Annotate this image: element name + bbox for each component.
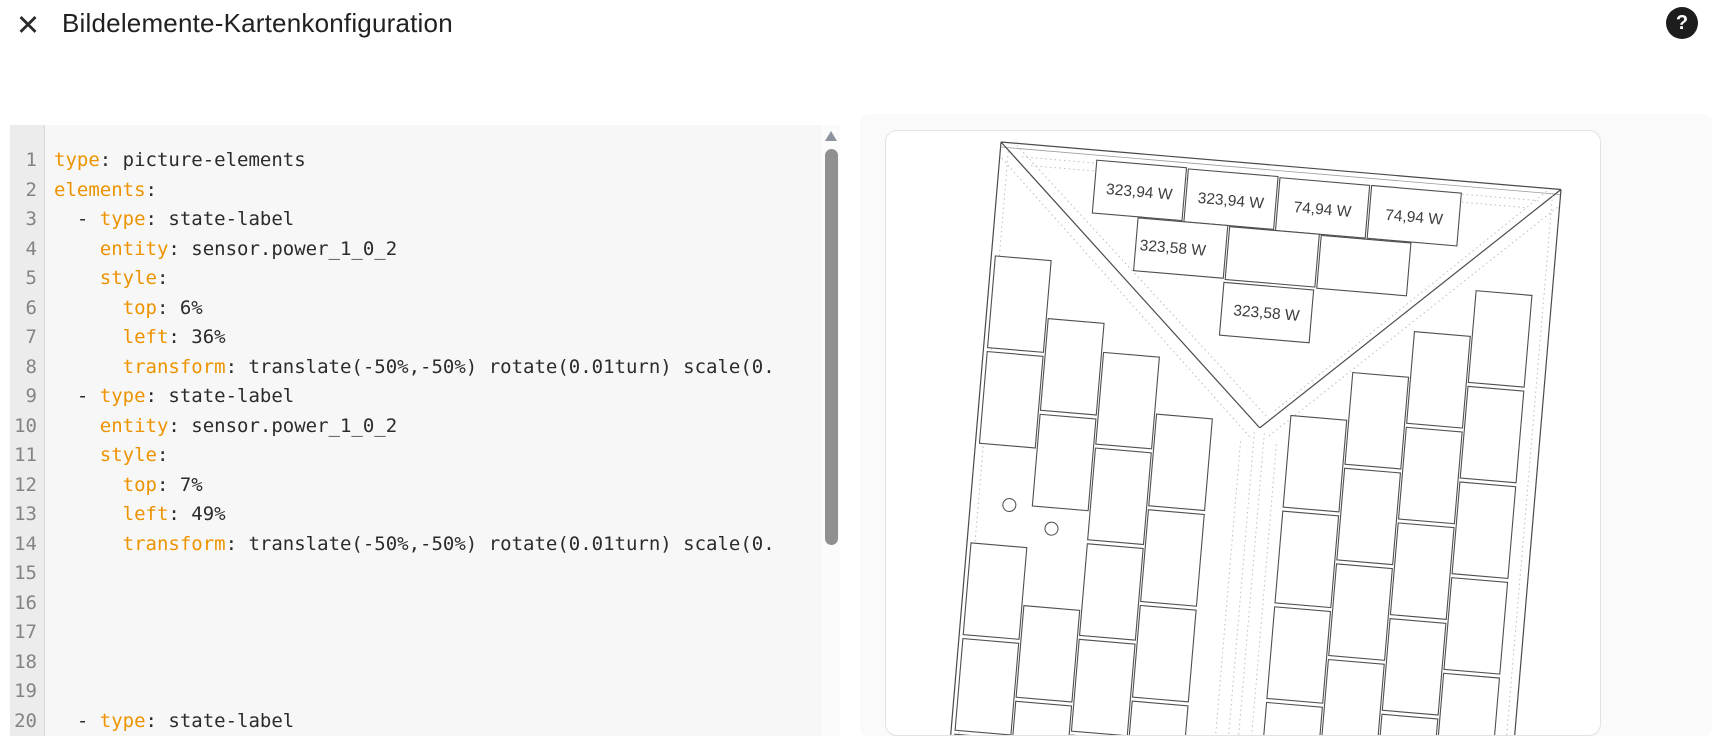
roof-vent <box>1002 498 1016 512</box>
editor-line <box>54 589 822 619</box>
yaml-editor[interactable]: 1234567891011121314151617181920 type: pi… <box>10 125 822 736</box>
line-number: 5 <box>10 264 37 294</box>
editor-code[interactable]: type: picture-elementselements: - type: … <box>45 125 822 736</box>
editor-line <box>54 559 822 589</box>
line-number: 9 <box>10 382 37 412</box>
solar-panel <box>1317 235 1411 295</box>
line-number: 7 <box>10 323 37 353</box>
editor-line: transform: translate(-50%,-50%) rotate(0… <box>54 530 822 560</box>
line-number: 2 <box>10 176 37 206</box>
line-number: 3 <box>10 205 37 235</box>
help-button[interactable]: ? <box>1666 7 1698 39</box>
line-number: 19 <box>10 677 37 707</box>
line-number: 10 <box>10 412 37 442</box>
help-icon: ? <box>1676 12 1688 34</box>
editor-line: left: 36% <box>54 323 822 353</box>
editor-line: style: <box>54 441 822 471</box>
line-number: 16 <box>10 589 37 619</box>
left-roof-panels <box>947 256 1225 736</box>
card-preview-panel: 323,94 W 323,94 W 74,94 W 74,94 W 323,58… <box>860 114 1712 736</box>
picture-elements-card-preview: 323,94 W 323,94 W 74,94 W 74,94 W 323,58… <box>885 130 1601 736</box>
line-number: 8 <box>10 353 37 383</box>
labeled-solar-panels: 323,94 W 323,94 W 74,94 W 74,94 W 323,58… <box>1083 160 1462 354</box>
line-number: 17 <box>10 618 37 648</box>
line-number: 14 <box>10 530 37 560</box>
dialog-header: ✕ Bildelemente-Kartenkonfiguration ? <box>0 0 1726 64</box>
line-number: 1 <box>10 146 37 176</box>
scrollbar-thumb[interactable] <box>825 149 838 545</box>
close-button[interactable]: ✕ <box>8 6 48 46</box>
line-number: 15 <box>10 559 37 589</box>
editor-line: - type: state-label <box>54 382 822 412</box>
editor-line: - type: state-label <box>54 707 822 736</box>
editor-line: style: <box>54 264 822 294</box>
line-number: 18 <box>10 648 37 678</box>
line-number: 11 <box>10 441 37 471</box>
line-number: 12 <box>10 471 37 501</box>
editor-line: top: 6% <box>54 294 822 324</box>
editor-line: transform: translate(-50%,-50%) rotate(0… <box>54 353 822 383</box>
dialog-title: Bildelemente-Kartenkonfiguration <box>62 4 453 42</box>
editor-line: type: picture-elements <box>54 146 822 176</box>
right-roof-panels <box>1254 276 1532 736</box>
editor-line <box>54 648 822 678</box>
solar-panel <box>1225 227 1319 287</box>
editor-line: - type: state-label <box>54 205 822 235</box>
line-number: 4 <box>10 235 37 265</box>
roof-plan-image: 323,94 W 323,94 W 74,94 W 74,94 W 323,58… <box>886 131 1601 736</box>
editor-line: top: 7% <box>54 471 822 501</box>
scrollbar-up-arrow[interactable] <box>825 131 837 141</box>
editor-line-numbers: 1234567891011121314151617181920 <box>10 125 45 736</box>
editor-line: elements: <box>54 176 822 206</box>
editor-line <box>54 618 822 648</box>
editor-line: left: 49% <box>54 500 822 530</box>
line-number: 20 <box>10 707 37 736</box>
editor-line <box>54 677 822 707</box>
editor-line: entity: sensor.power_1_0_2 <box>54 412 822 442</box>
editor-line: entity: sensor.power_1_0_2 <box>54 235 822 265</box>
roof-vent <box>1044 522 1058 536</box>
close-icon: ✕ <box>16 10 40 42</box>
line-number: 6 <box>10 294 37 324</box>
editor-scrollbar[interactable] <box>823 125 840 736</box>
line-number: 13 <box>10 500 37 530</box>
